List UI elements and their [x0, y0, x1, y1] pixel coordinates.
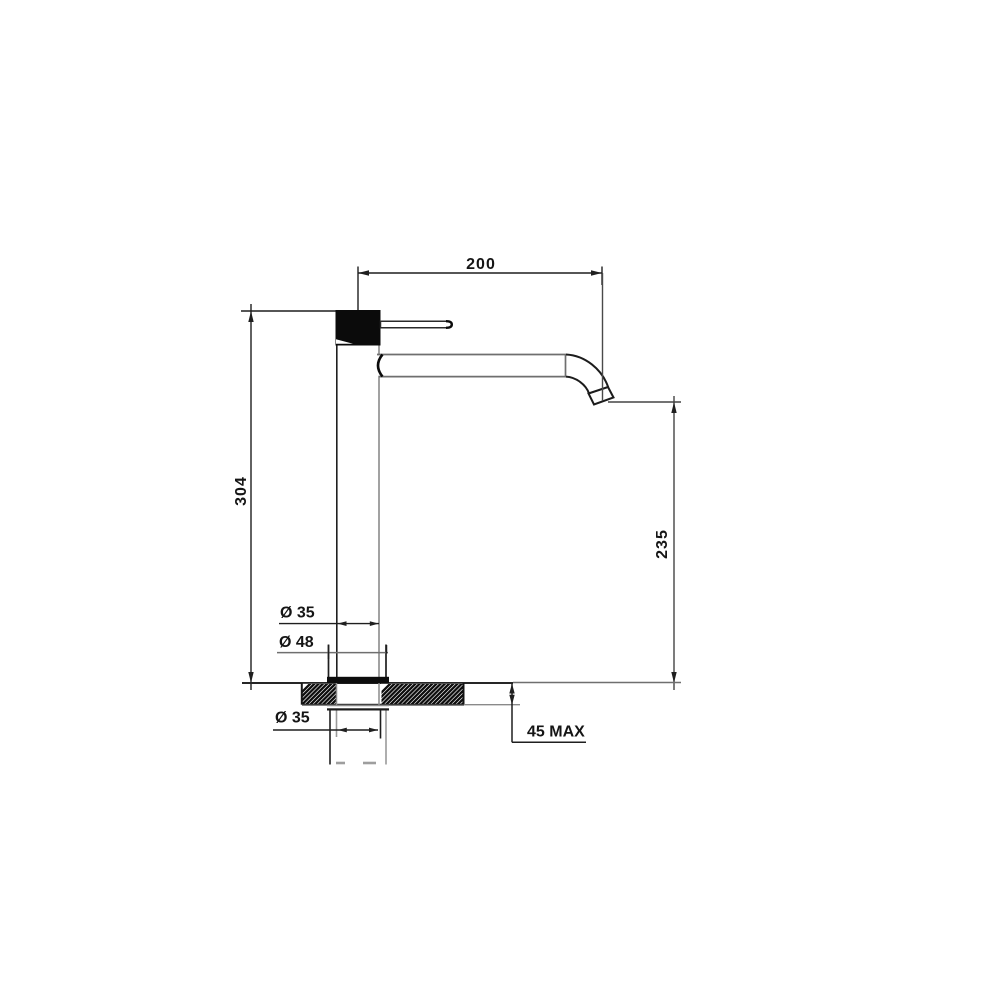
svg-text:200: 200 — [466, 256, 496, 273]
svg-text:235: 235 — [654, 529, 671, 559]
svg-text:45 MAX: 45 MAX — [527, 724, 585, 741]
svg-text:Ø 35: Ø 35 — [280, 605, 315, 622]
svg-text:Ø 35: Ø 35 — [275, 710, 310, 727]
svg-text:304: 304 — [233, 476, 250, 506]
svg-text:Ø 48: Ø 48 — [279, 634, 314, 651]
